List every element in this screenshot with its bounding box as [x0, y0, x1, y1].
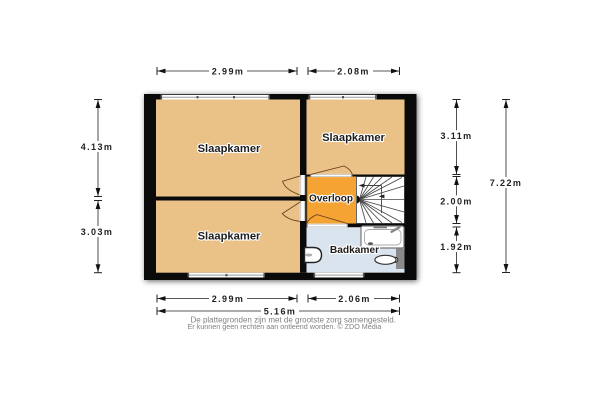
svg-text:3.11m: 3.11m [440, 131, 472, 141]
svg-text:Badkamer: Badkamer [330, 245, 379, 256]
svg-text:Slaapkamer: Slaapkamer [198, 231, 261, 243]
svg-text:2.99m: 2.99m [212, 294, 245, 304]
svg-text:4.13m: 4.13m [81, 142, 114, 152]
svg-text:2.06m: 2.06m [338, 294, 371, 304]
svg-text:Slaapkamer: Slaapkamer [322, 132, 385, 144]
svg-text:Er kunnen geen rechten aan ont: Er kunnen geen rechten aan ontleend word… [188, 322, 382, 331]
svg-text:7.22m: 7.22m [490, 178, 523, 188]
svg-text:2.08m: 2.08m [337, 67, 370, 77]
svg-text:2.99m: 2.99m [212, 67, 245, 77]
svg-text:3.03m: 3.03m [81, 227, 114, 237]
svg-text:Slaapkamer: Slaapkamer [198, 143, 261, 155]
svg-text:2.00m: 2.00m [440, 196, 473, 206]
svg-text:1.92m: 1.92m [440, 242, 473, 252]
svg-text:Overloop: Overloop [309, 193, 353, 204]
